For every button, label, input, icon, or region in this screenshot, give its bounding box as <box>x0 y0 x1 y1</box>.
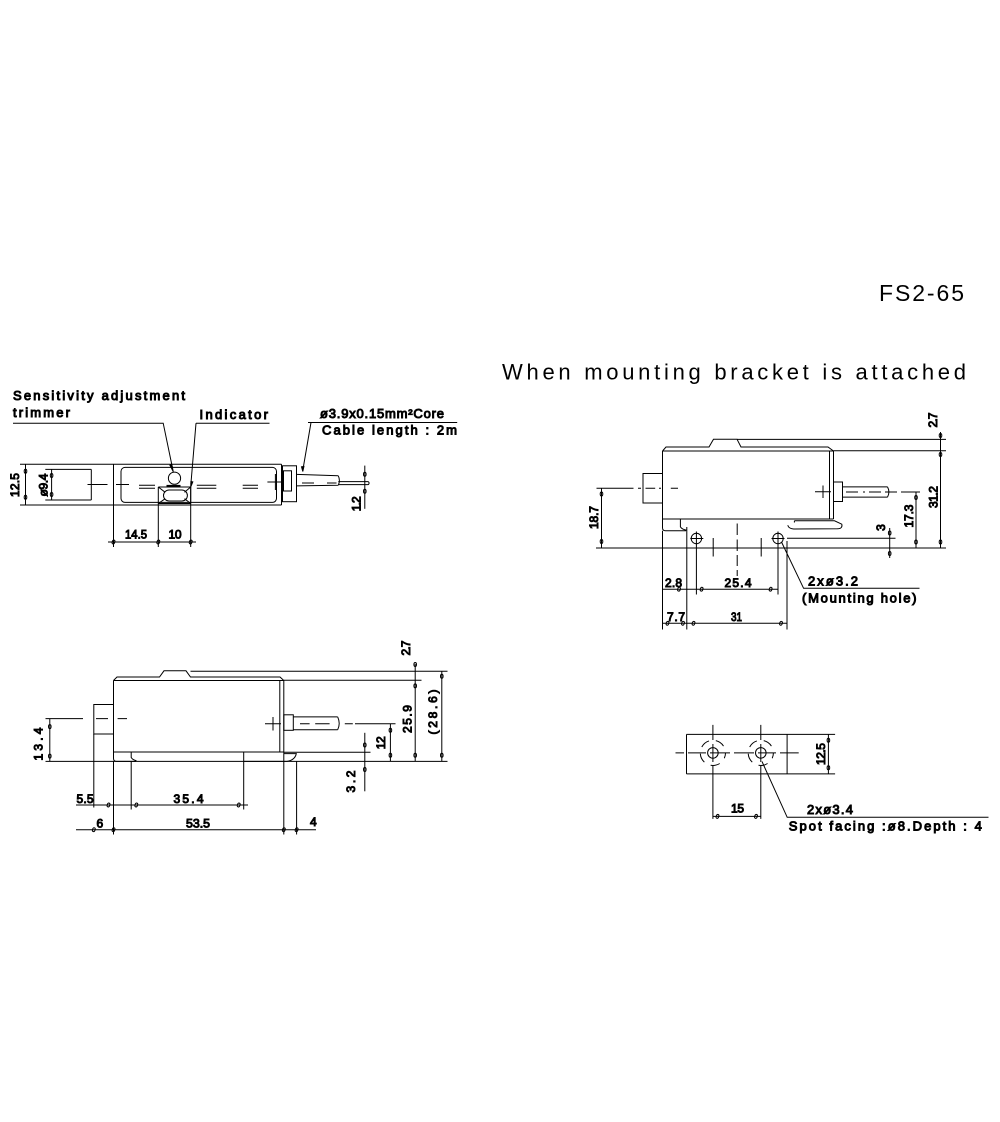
svg-text:2.7: 2.7 <box>926 412 940 427</box>
svg-text:2xø3.4: 2xø3.4 <box>807 802 853 817</box>
svg-text:31: 31 <box>731 610 742 624</box>
svg-text:18.7: 18.7 <box>587 506 601 529</box>
svg-text:25.9: 25.9 <box>401 705 415 733</box>
svg-text:53.5: 53.5 <box>186 817 210 831</box>
svg-text:(28.6): (28.6) <box>426 690 440 735</box>
svg-text:12.5: 12.5 <box>8 473 22 497</box>
svg-text:14.5: 14.5 <box>125 528 147 542</box>
svg-text:12: 12 <box>374 736 388 749</box>
svg-text:15: 15 <box>731 802 744 816</box>
svg-text:5.5: 5.5 <box>77 792 94 806</box>
svg-text:3: 3 <box>874 524 888 531</box>
svg-text:Indicator: Indicator <box>200 407 269 422</box>
svg-text:Cable length : 2m: Cable length : 2m <box>322 423 457 438</box>
svg-text:17.3: 17.3 <box>902 504 916 527</box>
svg-text:6: 6 <box>97 817 104 831</box>
svg-text:25.4: 25.4 <box>725 576 752 590</box>
svg-text:35.4: 35.4 <box>174 792 204 806</box>
svg-text:Spot facing :ø8.Depth : 4: Spot facing :ø8.Depth : 4 <box>789 819 982 834</box>
svg-text:ø9.4: ø9.4 <box>36 473 50 496</box>
svg-text:12.5: 12.5 <box>814 743 828 765</box>
svg-text:10: 10 <box>169 528 182 542</box>
svg-text:1.2: 1.2 <box>350 496 364 511</box>
svg-text:2.8: 2.8 <box>665 576 682 590</box>
svg-text:Sensitivity adjustment: Sensitivity adjustment <box>13 388 185 403</box>
svg-text:3.2: 3.2 <box>344 770 358 792</box>
svg-text:FS2-65: FS2-65 <box>879 280 964 306</box>
svg-text:7.7: 7.7 <box>667 610 685 624</box>
svg-text:ø3.9x0.15mm²Core: ø3.9x0.15mm²Core <box>320 406 444 421</box>
svg-text:2.7: 2.7 <box>399 640 413 655</box>
svg-text:31.2: 31.2 <box>927 486 941 508</box>
svg-text:4: 4 <box>310 815 317 829</box>
